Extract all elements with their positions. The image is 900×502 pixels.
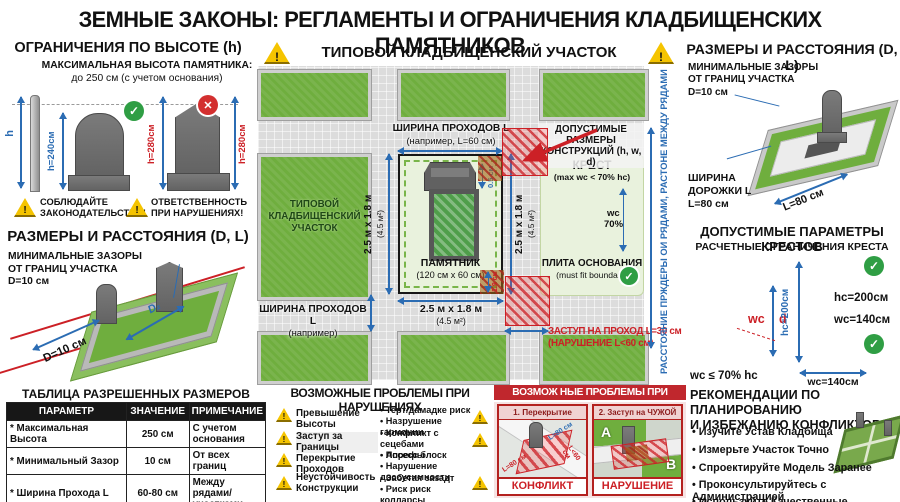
right-distances-note: МИНИМАЛЬНЫЕ ЗАЗОРЫ ОТ ГРАНИЦ УЧАСТКА D=1… bbox=[688, 62, 818, 99]
cross-w-value: wc=140см bbox=[834, 314, 890, 326]
panel2-caption: НАРУШЕНИЕ bbox=[594, 477, 681, 494]
recommendation-item: • Изучите Устав Кладбища bbox=[692, 426, 833, 438]
warning-icon: ! bbox=[472, 433, 488, 447]
wc-dim-label: wc bbox=[748, 312, 765, 326]
warning-icon: ! bbox=[276, 476, 292, 490]
grave-plot-iso bbox=[70, 272, 238, 381]
violation-width-arrow bbox=[505, 330, 548, 332]
cross-w-bottom: wc=140см bbox=[792, 376, 874, 388]
panel1-title: 1. Перекрытие Дорожки bbox=[499, 406, 586, 420]
height-pole bbox=[30, 95, 40, 192]
cross-height-arrow bbox=[798, 262, 800, 362]
recommendation-item: • Измерьте Участок Точно bbox=[692, 444, 829, 456]
cross-height-vertical-label: hc=200см bbox=[781, 262, 791, 362]
plot-map-heading: ТИПОВОЙ КЛАДБИЩЕНСКИЙ УЧАСТОК bbox=[296, 44, 642, 61]
wc-label: wc bbox=[607, 208, 620, 219]
check-icon: ✓ bbox=[124, 101, 144, 121]
aisle-top-arrow bbox=[398, 150, 502, 152]
cross-width-arrow bbox=[800, 372, 866, 374]
monument-bad-height-right: h=280см bbox=[238, 100, 248, 188]
cross-formula: wc ≤ 70% hc bbox=[690, 370, 758, 382]
path-width-note: ШИРИНА ДОРОЖКИ L L=80 см bbox=[688, 172, 751, 211]
panel1-graphic: L=80 см L=80 см L<60 см bbox=[499, 420, 586, 477]
problem-label: Заступ за Границы bbox=[296, 432, 378, 453]
problem-label: НеустойчивостьКонструкции bbox=[296, 473, 378, 494]
orthodox-cross-icon bbox=[557, 187, 605, 253]
plot-cross: КРЕСТ (max wc < 70% hc) wc 70% ПЛИТА ОСН… bbox=[540, 154, 644, 296]
col-header: ПАРАМЕТР bbox=[7, 403, 127, 421]
problem-bullets: • Забетая зазадт • Риск риск колларсы bbox=[380, 473, 472, 502]
plot-hdim-bottom bbox=[398, 300, 503, 302]
mini-monument bbox=[884, 420, 892, 436]
check-icon: ✓ bbox=[620, 267, 638, 285]
cross-d-arrow bbox=[772, 286, 774, 356]
monument-bad-body bbox=[175, 103, 220, 175]
recommendation-item: • Спроектируйте Модель Заранее bbox=[692, 462, 872, 474]
check-icon: ✓ bbox=[864, 256, 884, 276]
typical-plot-label: ТИПОВОЙ КЛАДБИЩЕНСКИЙ УЧАСТОК bbox=[261, 199, 368, 235]
row-distance-label: РАССТОЯНИЕ ПРЖДЕРЫ ОИ РЯДАМИ, РАСТОНЕ МЕ… bbox=[660, 70, 669, 374]
violation-panel-1: 1. Перекрытие Дорожки L=80 см L=80 см L<… bbox=[497, 404, 588, 496]
iso-monument-base bbox=[817, 132, 847, 143]
pole-height-arrow bbox=[20, 97, 22, 188]
plot-vdim-left-label: 2.5 м x 1.8 м bbox=[364, 154, 374, 294]
plot bbox=[398, 332, 509, 384]
pole-height-label: h bbox=[5, 130, 16, 137]
monument-ok-height: h=240см bbox=[47, 113, 57, 189]
orthodox-cross-icon bbox=[700, 258, 758, 362]
gap-bottom-label: 1.9 см bbox=[492, 271, 499, 293]
iso-monument bbox=[822, 90, 842, 136]
monument-shape bbox=[529, 422, 543, 448]
monument-body-top bbox=[429, 189, 479, 261]
recommendation-item: • Используйте Качественные Материалы bbox=[692, 496, 900, 502]
problem-label: Превышение Высоты bbox=[296, 409, 378, 430]
table-row: * Минимальный Зазор10 смОт всех границ bbox=[7, 448, 266, 475]
left-distances-heading: РАЗМЕРЫ И РАССТОЯНИЯ (D, L) bbox=[2, 228, 254, 245]
overlap-corner-top bbox=[478, 156, 502, 181]
panel2-letter-a: A bbox=[601, 424, 611, 440]
infographic-page: ЗЕМНЫЕ ЗАКОНЫ: РЕГЛАМЕНТЫ И ОГРАНИЧЕНИЯ … bbox=[0, 0, 900, 502]
table-row: * Максимальная Высота250 смС учетом осно… bbox=[7, 421, 266, 448]
plot bbox=[540, 70, 648, 120]
crosses-subheading: РАСЧЕТНЫЕ ОГРАНИЧЕНИЯ КРЕСТА bbox=[686, 241, 898, 253]
cross-subtitle: (max wc < 70% hc) bbox=[541, 172, 643, 182]
violation-panel-2: 2. Заступ на ЧУЖОЙ Участок A B НАРУШЕНИЕ bbox=[592, 404, 683, 496]
gap-bottom-arrow bbox=[488, 272, 489, 292]
warning-icon: ! bbox=[14, 198, 36, 217]
aisle-bottom-arrow bbox=[370, 295, 372, 331]
violation-arrow bbox=[513, 124, 605, 170]
monument-label: ПАМЯТНИК bbox=[400, 257, 501, 269]
orthodox-cross-icon bbox=[806, 250, 860, 372]
plot-vdim-left-area: (4.5 м²) bbox=[376, 154, 384, 294]
monument-ok-base bbox=[68, 175, 130, 191]
violations-header: ВОЗМОЖ НЫЕ ПРОБЛЕМЫ ПРИ НАРУШЕНИХ bbox=[494, 385, 686, 400]
monument-headstone-top bbox=[424, 162, 476, 191]
plot bbox=[258, 70, 371, 120]
panel2-graphic: A B bbox=[594, 420, 681, 477]
plot-typical: ТИПОВОЙ КЛАДБИЩЕНСКИЙ УЧАСТОК bbox=[258, 154, 371, 300]
allowed-sizes-table: ПАРАМЕТР ЗНАЧЕНИЕ ПРИМЕЧАНИЕ * Максималь… bbox=[6, 402, 266, 502]
check-icon: ✓ bbox=[864, 334, 884, 354]
aisle-bottom-label: ШИРИНА ПРОХОДОВ L (например) bbox=[258, 304, 368, 339]
mini-monument bbox=[856, 412, 864, 428]
warn2-text: ОТВЕТСТВЕННОСТЬПРИ НАРУШЕНИЯХ! bbox=[151, 197, 247, 218]
plot-hdim-bottom-label: 2.5 м x 1.8 м (4.5 м²) bbox=[386, 304, 516, 327]
max-height-line2: до 250 см (с учетом основания) bbox=[40, 73, 254, 84]
warning-icon: ! bbox=[276, 431, 292, 445]
plot bbox=[258, 332, 371, 384]
table-heading: ТАБЛИЦА РАЗРЕШЕННЫХ РАЗМЕРОВ bbox=[4, 387, 268, 401]
cross-height-arrow bbox=[623, 189, 624, 251]
monument-bad-arrow-left bbox=[162, 97, 164, 189]
violation-text: ЗАСТУП НА ПРОХОД L=30 см (НАРУШЕНИЕ L<60… bbox=[548, 326, 698, 349]
col-header: ПРИМЕЧАНИЕ bbox=[189, 403, 265, 421]
row-distance-arrow bbox=[650, 128, 652, 348]
table-row: * Ширина Прохода L60-80 смМежду рядами/у… bbox=[7, 475, 266, 502]
monument-ok-body bbox=[75, 113, 124, 177]
panel2-title: 2. Заступ на ЧУЖОЙ Участок bbox=[594, 406, 681, 420]
plot bbox=[398, 70, 509, 120]
monument-ok-arrow bbox=[62, 113, 64, 189]
monument-bad-base bbox=[167, 173, 230, 191]
plot-vdim-left bbox=[388, 154, 390, 294]
panel1-caption: КОНФЛИКТ bbox=[499, 477, 586, 494]
height-limits-heading: ОГРАНИЧЕНИЯ ПО ВЫСОТЕ (h) bbox=[2, 40, 254, 56]
violation-hatch-bottom bbox=[505, 276, 550, 326]
warning-icon: ! bbox=[276, 453, 292, 467]
monument-bad-arrow-right bbox=[234, 97, 236, 189]
wc-pct: 70% bbox=[604, 219, 623, 230]
aisle-top-label: ШИРИНА ПРОХОДОВ L (например, L=60 см) bbox=[384, 123, 518, 146]
max-height-line1: МАКСИМАЛЬНАЯ ВЫСОТА ПАМЯТНИКА: bbox=[40, 60, 254, 71]
x-icon: ✕ bbox=[198, 95, 218, 115]
left-distances-note: МИНИМАЛЬНЫЕ ЗАЗОРЫ ОТ ГРАНИЦ УЧАСТКА D=1… bbox=[8, 251, 142, 289]
monument-bad-height-left: h=280см bbox=[147, 100, 157, 188]
cross-h-value: hc=200см bbox=[834, 292, 888, 304]
col-header: ЗНАЧЕНИЕ bbox=[126, 403, 189, 421]
